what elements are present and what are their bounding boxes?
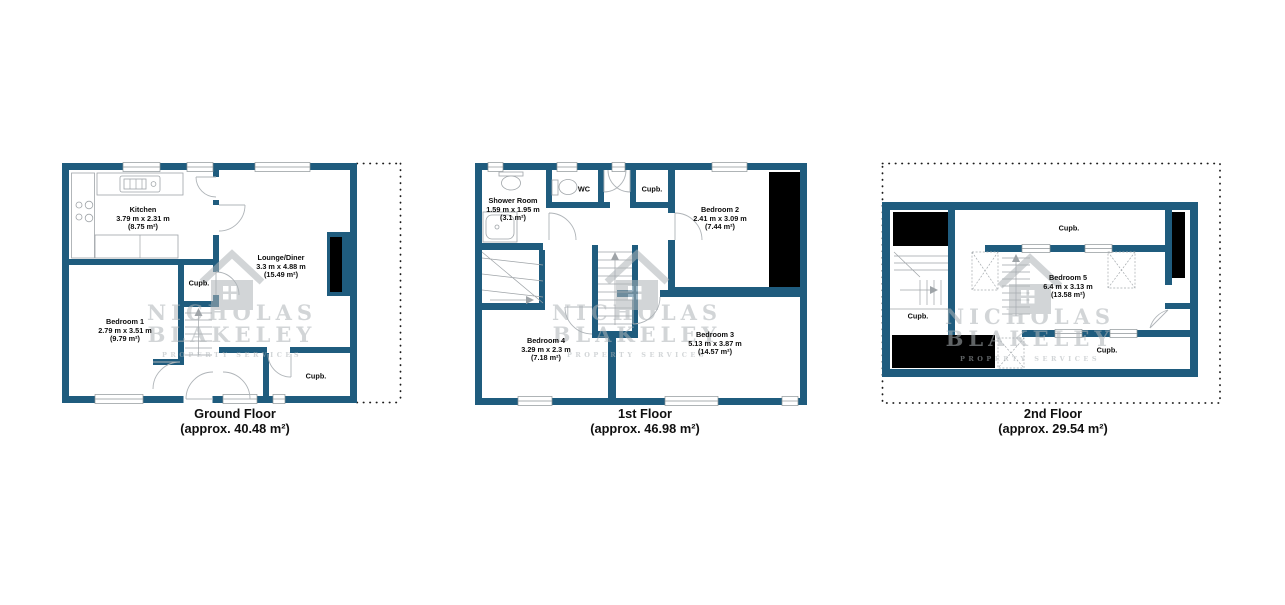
watermark-line3: PROPERTY SERVICES — [960, 355, 1100, 363]
room-area: (14.57 m²) — [688, 348, 742, 357]
floor-area: (approx. 40.48 m²) — [180, 422, 290, 437]
room-name: Cupb. — [642, 186, 663, 195]
floorplan-page: NICHOLAS BLAKELEY PROPERTY SERVICES — [0, 0, 1285, 605]
interior-walls — [69, 170, 350, 396]
room-label-cupboard: Cupb. — [908, 313, 929, 322]
room-label-bedroom-1: Bedroom 1 2.79 m x 3.51 m (9.79 m²) — [98, 318, 152, 344]
toilet-icon — [559, 180, 577, 195]
room-area: (3.1 m²) — [486, 214, 540, 223]
watermark-line2: BLAKELEY — [946, 326, 1115, 351]
room-name: Cupb. — [189, 280, 210, 289]
room-label-bedroom-5: Bedroom 5 6.4 m x 3.13 m (13.58 m²) — [1043, 274, 1093, 300]
room-name: WC — [578, 186, 590, 195]
room-label-bedroom-3: Bedroom 3 5.13 m x 3.87 m (14.57 m²) — [688, 331, 742, 357]
room-area: (9.79 m²) — [98, 335, 152, 344]
staircase-upper — [890, 252, 948, 309]
room-label-cupboard: Cupb. — [189, 280, 210, 289]
room-area: (7.44 m²) — [693, 223, 747, 232]
boundary-dotted-line — [357, 164, 401, 404]
chimney-black — [769, 172, 800, 290]
room-area: (7.18 m²) — [521, 354, 571, 363]
fireplace — [327, 232, 350, 296]
front-door-opening — [184, 395, 213, 405]
room-label-cupboard: Cupb. — [642, 186, 663, 195]
doors — [1150, 310, 1168, 328]
floor-title: 1st Floor — [590, 407, 700, 422]
floorplan-canvas: NICHOLAS BLAKELEY PROPERTY SERVICES — [0, 0, 1285, 605]
room-name: Cupb. — [1059, 225, 1080, 234]
room-label-wc: WC — [578, 186, 590, 195]
staircase-lower — [482, 252, 543, 304]
floor-caption-ground: Ground Floor (approx. 40.48 m²) — [180, 407, 290, 437]
room-name: Cupb. — [908, 313, 929, 322]
watermark-line3: PROPERTY SERVICES — [162, 351, 302, 359]
watermark-line2: BLAKELEY — [148, 322, 317, 347]
tap-icon — [151, 182, 156, 187]
room-area: (13.58 m²) — [1043, 291, 1093, 300]
hob-ring-icon — [85, 214, 93, 222]
room-label-cupboard: Cupb. — [1097, 347, 1118, 356]
floor-caption-second: 2nd Floor (approx. 29.54 m²) — [998, 407, 1108, 437]
floor-title: 2nd Floor — [998, 407, 1108, 422]
room-name: Cupb. — [1097, 347, 1118, 356]
hob-ring-icon — [76, 202, 82, 208]
hob-ring-icon — [76, 214, 82, 220]
room-label-cupboard: Cupb. — [1059, 225, 1080, 234]
hob-ring-icon — [85, 201, 93, 209]
floor-area: (approx. 29.54 m²) — [998, 422, 1108, 437]
room-label-lounge-diner: Lounge/Diner 3.3 m x 4.88 m (15.49 m²) — [256, 254, 306, 280]
room-label-shower-room: Shower Room 1.59 m x 1.95 m (3.1 m²) — [486, 197, 540, 223]
floor-title: Ground Floor — [180, 407, 290, 422]
floor-caption-first: 1st Floor (approx. 46.98 m²) — [590, 407, 700, 437]
basin-icon — [502, 176, 521, 190]
cistern-icon — [552, 180, 558, 195]
room-label-bedroom-2: Bedroom 2 2.41 m x 3.09 m (7.44 m²) — [693, 206, 747, 232]
ground-floor-plan: NICHOLAS BLAKELEY PROPERTY SERVICES — [62, 163, 401, 405]
room-label-bedroom-4: Bedroom 4 3.29 m x 2.3 m (7.18 m²) — [521, 337, 571, 363]
room-area: (15.49 m²) — [256, 271, 306, 280]
floor-area: (approx. 46.98 m²) — [590, 422, 700, 437]
room-label-cupboard: Cupb. — [306, 373, 327, 382]
room-area: (8.75 m²) — [116, 223, 170, 232]
room-name: Cupb. — [306, 373, 327, 382]
watermark-line3: PROPERTY SERVICES — [567, 351, 707, 359]
outer-walls — [62, 163, 357, 403]
room-label-kitchen: Kitchen 3.79 m x 2.31 m (8.75 m²) — [116, 206, 170, 232]
